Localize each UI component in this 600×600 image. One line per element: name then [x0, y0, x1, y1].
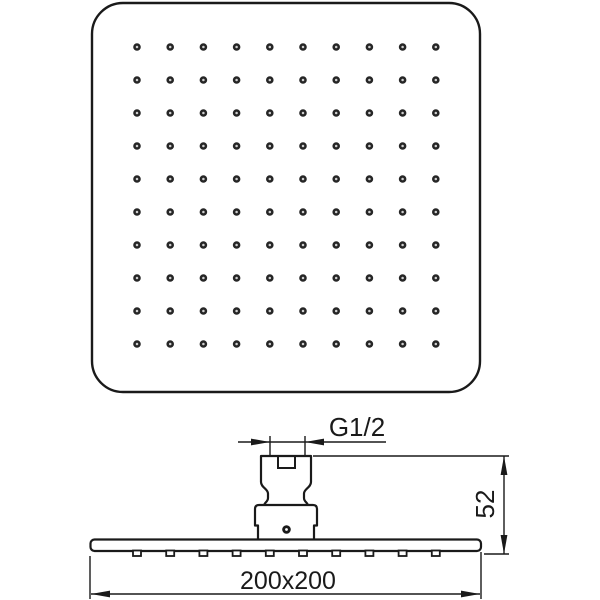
nozzle-dot-center: [302, 46, 305, 49]
nozzle-dot-center: [335, 79, 338, 82]
nozzle-dot-center: [269, 211, 272, 214]
nozzle-dot-center: [136, 46, 139, 49]
nozzle-dot-center: [235, 178, 238, 181]
nozzle-dot-center: [435, 46, 438, 49]
height-arrow-top-icon: [501, 456, 508, 475]
thread-dimension-label: G1/2: [329, 412, 385, 442]
nozzle-dot-center: [435, 244, 438, 247]
nozzle-dot-center: [169, 343, 172, 346]
nozzle-dot-center: [302, 310, 305, 313]
nozzle-dot-center: [435, 211, 438, 214]
nozzle-dot-center: [269, 244, 272, 247]
nozzle-dot-center: [235, 244, 238, 247]
nozzle-dot-center: [235, 277, 238, 280]
nozzle-dot-center: [202, 310, 205, 313]
nozzle-dot-center: [136, 112, 139, 115]
pivot-screw-center: [285, 528, 288, 531]
nozzle-tab: [299, 551, 307, 557]
nozzle-dot-center: [235, 310, 238, 313]
nozzle-dot-center: [435, 145, 438, 148]
nozzle-dot-center: [435, 343, 438, 346]
nozzle-dot-center: [169, 211, 172, 214]
nozzle-dot-center: [335, 178, 338, 181]
nozzle-dot-center: [368, 343, 371, 346]
nozzle-dot-center: [202, 343, 205, 346]
nozzle-dot-center: [401, 310, 404, 313]
size-dimension-label: 200x200: [240, 567, 336, 595]
nozzle-dot-center: [401, 211, 404, 214]
nozzle-dot-center: [302, 244, 305, 247]
nozzle-dot-center: [335, 343, 338, 346]
nozzle-dot-center: [202, 145, 205, 148]
height-dimension-label: 52: [470, 490, 500, 519]
connector-thread-profile: [261, 456, 311, 506]
nozzle-dot-center: [401, 178, 404, 181]
nozzle-dot-center: [269, 310, 272, 313]
nozzle-dot-center: [269, 46, 272, 49]
nozzle-dot-center: [202, 46, 205, 49]
nozzle-dot-center: [335, 310, 338, 313]
nozzle-tab: [199, 551, 207, 557]
nozzle-dot-center: [401, 145, 404, 148]
nozzle-dot-center: [335, 145, 338, 148]
swivel-block: [255, 505, 317, 540]
nozzle-dot-center: [368, 277, 371, 280]
nozzle-dot-center: [269, 145, 272, 148]
nozzle-dot-center: [435, 310, 438, 313]
nozzle-dot-center: [235, 46, 238, 49]
nozzle-dot-center: [302, 112, 305, 115]
nozzle-dot-center: [401, 343, 404, 346]
nozzle-dot-center: [136, 79, 139, 82]
nozzle-dot-center: [269, 178, 272, 181]
nozzle-dot-center: [169, 178, 172, 181]
nozzle-dot-center: [368, 46, 371, 49]
nozzle-dot-center: [368, 244, 371, 247]
nozzle-tab: [332, 551, 340, 557]
nozzle-dot-center: [202, 244, 205, 247]
nozzle-dot-center: [235, 145, 238, 148]
nozzle-dot-center: [202, 79, 205, 82]
nozzle-dot-center: [302, 145, 305, 148]
nozzle-dot-center: [368, 211, 371, 214]
nozzle-dot-center: [202, 211, 205, 214]
nozzle-tab: [133, 551, 141, 557]
thread-arrow-right-icon: [305, 439, 324, 446]
shower-face-outline: [92, 3, 480, 392]
nozzle-dot-center: [269, 79, 272, 82]
nozzle-tab: [365, 551, 373, 557]
nozzle-dot-center: [136, 211, 139, 214]
nozzle-tab: [166, 551, 174, 557]
nozzle-dot-center: [335, 211, 338, 214]
nozzle-dot-center: [235, 211, 238, 214]
nozzle-dot-center: [368, 112, 371, 115]
nozzle-dot-center: [435, 112, 438, 115]
nozzle-dot-center: [169, 112, 172, 115]
size-arrow-right-icon: [461, 591, 480, 598]
nozzle-dot-center: [136, 277, 139, 280]
nozzle-tab: [266, 551, 274, 557]
nozzle-dot-center: [435, 277, 438, 280]
nozzle-dot-center: [269, 112, 272, 115]
nozzle-dot-center: [368, 310, 371, 313]
nozzle-dot-center: [136, 145, 139, 148]
nozzle-dot-center: [368, 178, 371, 181]
nozzle-dot-center: [169, 145, 172, 148]
nozzle-dot-center: [401, 277, 404, 280]
front-view: [92, 3, 480, 392]
thread-dimension: G1/2: [238, 412, 386, 455]
nozzle-dot-center: [202, 277, 205, 280]
side-view: [91, 456, 482, 556]
nozzle-tab: [432, 551, 440, 557]
technical-drawing-canvas: G1/2 52 200x200: [0, 0, 600, 600]
nozzle-dot-center: [302, 277, 305, 280]
nozzle-dot-center: [136, 244, 139, 247]
nozzle-dot-center: [269, 343, 272, 346]
nozzle-dot-center: [235, 79, 238, 82]
nozzle-dot-center: [235, 112, 238, 115]
nozzle-dot-center: [136, 178, 139, 181]
thread-arrow-left-icon: [251, 439, 270, 446]
nozzle-dot-center: [302, 79, 305, 82]
nozzle-dot-center: [302, 343, 305, 346]
nozzle-dot-center: [335, 46, 338, 49]
nozzle-dot-center: [335, 277, 338, 280]
nozzle-dot-center: [302, 211, 305, 214]
nozzle-dot-center: [169, 244, 172, 247]
shower-plate-profile: [91, 540, 482, 552]
nozzle-dot-center: [401, 112, 404, 115]
nozzle-dot-center: [169, 79, 172, 82]
nozzle-tab: [233, 551, 241, 557]
height-arrow-bottom-icon: [501, 535, 508, 554]
nozzle-dot-center: [136, 310, 139, 313]
nozzle-dot-center: [269, 277, 272, 280]
nozzle-dot-center: [401, 46, 404, 49]
nozzle-dot-center: [401, 244, 404, 247]
nozzle-dot-center: [202, 178, 205, 181]
nozzle-dot-center: [335, 244, 338, 247]
nozzle-dot-center: [169, 277, 172, 280]
nozzle-tab: [399, 551, 407, 557]
nozzle-dot-center: [401, 79, 404, 82]
nozzle-dot-center: [435, 178, 438, 181]
nozzle-dot-center: [335, 112, 338, 115]
size-arrow-left-icon: [91, 591, 110, 598]
size-dimension: 200x200: [90, 552, 481, 599]
nozzle-dot-center: [202, 112, 205, 115]
nozzle-dot-center: [169, 310, 172, 313]
nozzle-dot-center: [302, 178, 305, 181]
nozzle-dot-center: [169, 46, 172, 49]
nozzle-dot-center: [235, 343, 238, 346]
nozzle-dot-center: [435, 79, 438, 82]
nozzle-dot-center: [136, 343, 139, 346]
nozzle-dot-center: [368, 79, 371, 82]
nozzle-dot-center: [368, 145, 371, 148]
